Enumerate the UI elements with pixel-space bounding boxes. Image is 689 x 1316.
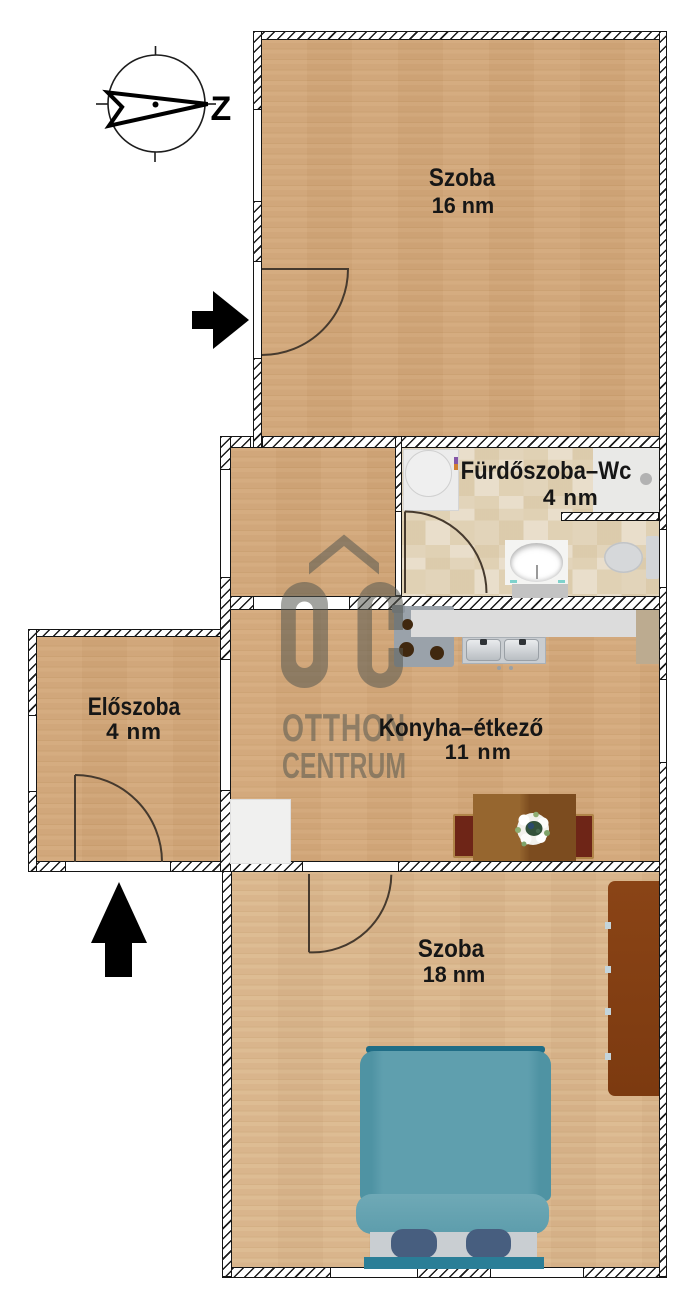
svg-text:Z: Z [211, 90, 232, 128]
svg-text:CENTRUM: CENTRUM [282, 745, 406, 786]
